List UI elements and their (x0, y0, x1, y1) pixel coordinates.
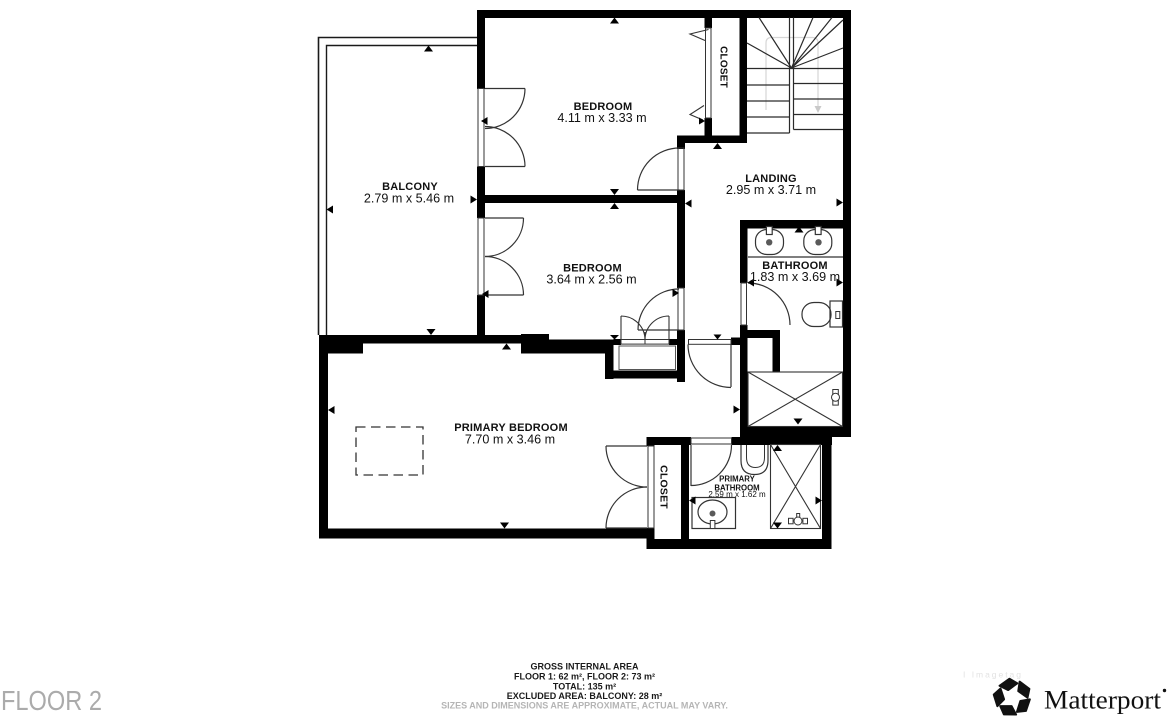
svg-text:I Imagetag: I Imagetag (963, 670, 1021, 680)
svg-text:2.95 m x 3.71 m: 2.95 m x 3.71 m (726, 183, 816, 197)
svg-text:GROSS INTERNAL AREA: GROSS INTERNAL AREA (530, 662, 639, 672)
svg-text:3.64 m x 2.56 m: 3.64 m x 2.56 m (546, 273, 636, 287)
svg-text:FLOOR 1: 62 m², FLOOR 2: 73 m²: FLOOR 1: 62 m², FLOOR 2: 73 m² (514, 671, 655, 681)
svg-text:SIZES AND DIMENSIONS ARE APPRO: SIZES AND DIMENSIONS ARE APPROXIMATE, AC… (441, 701, 728, 711)
svg-text:1.83 m x 3.69 m: 1.83 m x 3.69 m (750, 270, 840, 284)
svg-text:4.11 m x 3.33 m: 4.11 m x 3.33 m (557, 111, 646, 125)
svg-text:PRIMARY: PRIMARY (719, 475, 755, 484)
svg-text:7.70 m x 3.46 m: 7.70 m x 3.46 m (465, 433, 555, 447)
svg-text:CLOSET: CLOSET (718, 46, 729, 88)
svg-text:2.59 m x 1.62 m: 2.59 m x 1.62 m (708, 490, 766, 499)
svg-text:TOTAL: 135 m²: TOTAL: 135 m² (553, 681, 616, 691)
svg-text:Matterport: Matterport (1044, 686, 1162, 715)
svg-text:CLOSET: CLOSET (658, 465, 670, 509)
svg-text:FLOOR 2: FLOOR 2 (1, 685, 102, 716)
svg-text:2.79 m x 5.46 m: 2.79 m x 5.46 m (364, 192, 454, 206)
